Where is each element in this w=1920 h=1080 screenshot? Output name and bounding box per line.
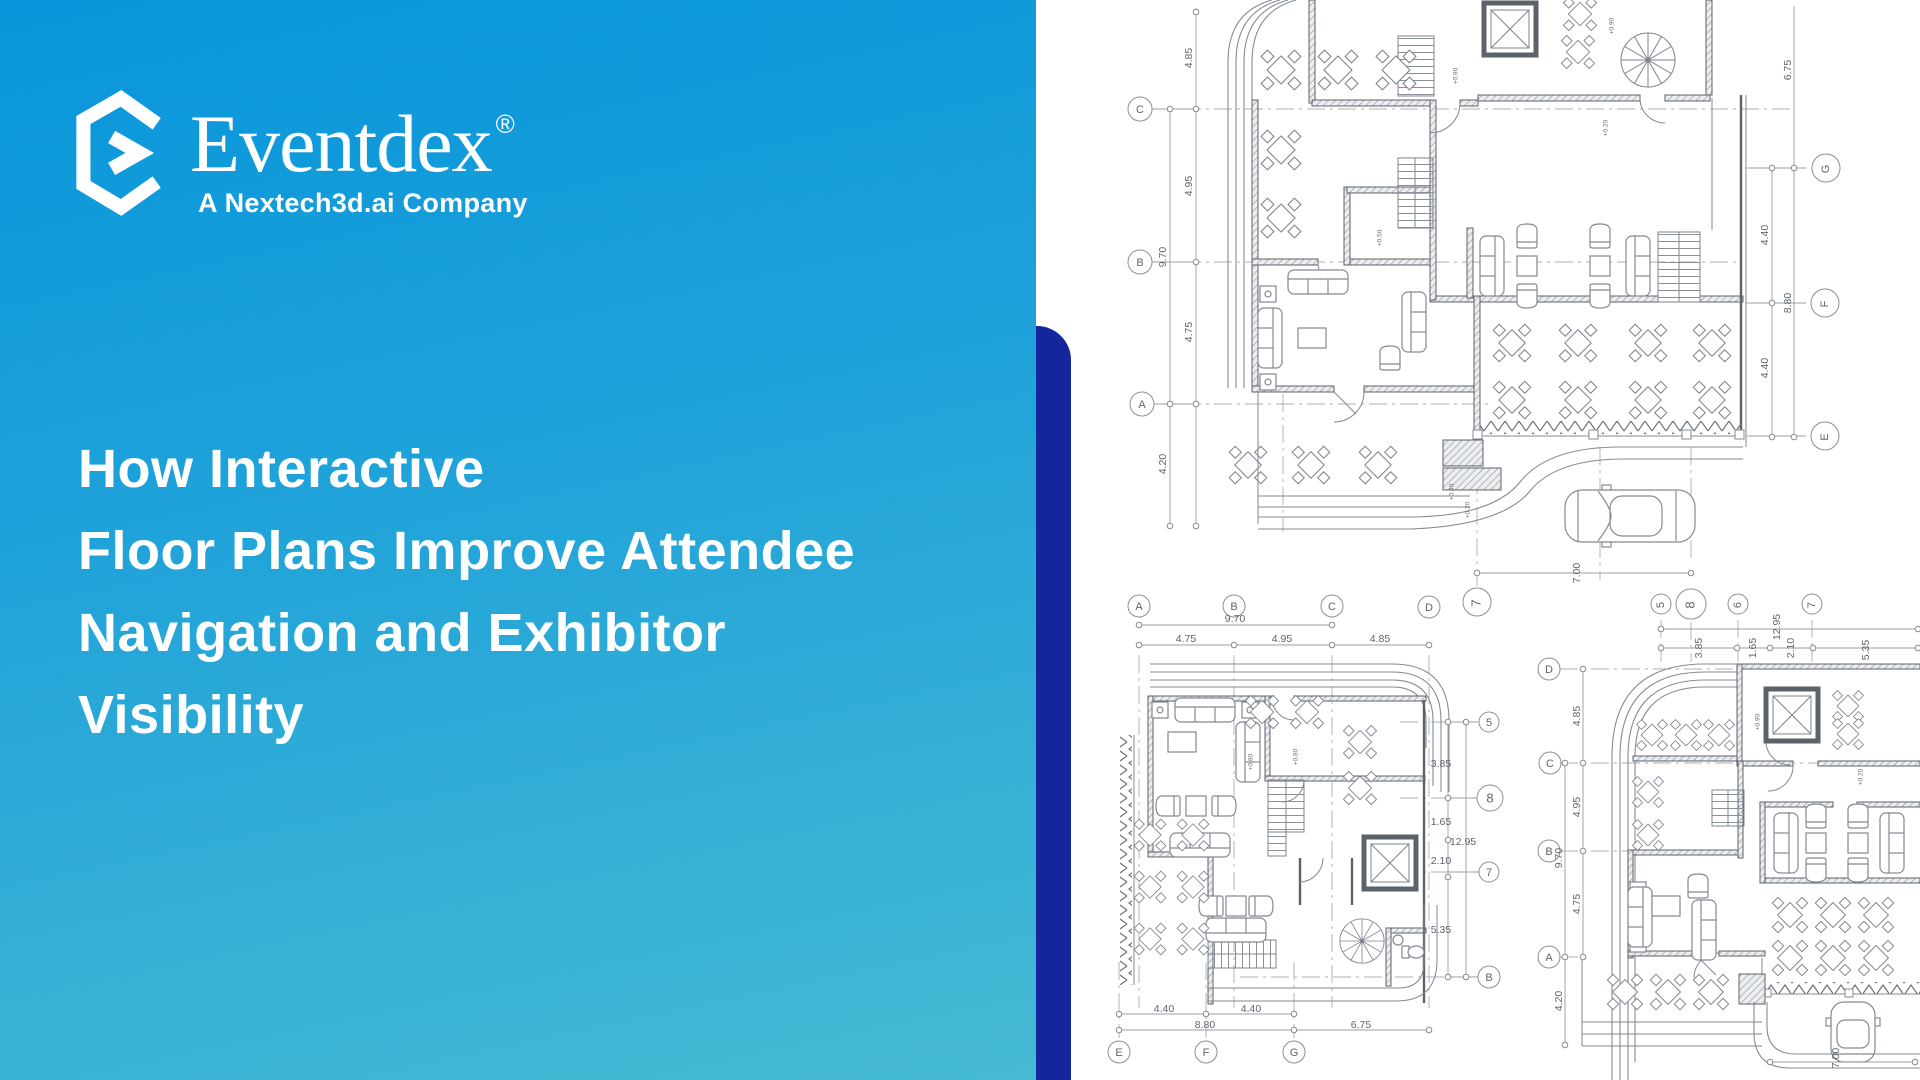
dim-label: 5.35	[1431, 924, 1452, 936]
svg-text:E: E	[1115, 1047, 1122, 1059]
spiral-stair-icon	[1340, 919, 1384, 963]
headline: How Interactive Floor Plans Improve Atte…	[78, 428, 855, 756]
svg-text:C: C	[1136, 104, 1144, 116]
brand-name: Eventdex®	[190, 84, 528, 184]
dim-label: 4.20	[1553, 991, 1565, 1012]
banner-canvas: 4.85 4.95 4.75 9.70 4.20 C B A 6.75 4.40…	[0, 0, 1920, 1080]
walls	[1252, 0, 1746, 447]
eventdex-logo-icon	[74, 87, 168, 217]
svg-text:+0.50: +0.50	[1377, 229, 1384, 246]
dim-label: 12.95	[1771, 614, 1783, 640]
svg-text:B: B	[1545, 846, 1552, 858]
stairs	[1712, 790, 1744, 826]
planter	[1443, 440, 1483, 466]
dim-label: 6.75	[1351, 1019, 1372, 1031]
dim-label: 4.95	[1571, 797, 1583, 818]
svg-text:+0.20: +0.20	[1603, 119, 1610, 136]
registered-mark: ®	[496, 109, 514, 139]
svg-text:8: 8	[1682, 601, 1697, 608]
eventdex-logo: Eventdex® A Nextech3d.ai Company	[74, 84, 528, 219]
dimensions: A B C D 9.70 4.75 4.95 4.85 3.85	[1108, 595, 1503, 1063]
dim-label: 8.80	[1782, 293, 1794, 314]
brand-tagline: A Nextech3d.ai Company	[190, 188, 528, 219]
svg-text:7: 7	[1806, 602, 1818, 608]
svg-text:C: C	[1546, 758, 1554, 770]
dim-label: 8.80	[1195, 1019, 1216, 1031]
dim-label: 9.70	[1553, 848, 1565, 869]
dim-label: 9.70	[1225, 613, 1246, 625]
svg-text:G: G	[1820, 165, 1832, 174]
svg-text:F: F	[1203, 1047, 1210, 1059]
svg-text:+0.20: +0.20	[1465, 501, 1472, 518]
spiral-stair-icon	[1621, 33, 1675, 87]
elevator-icon	[1364, 837, 1416, 889]
dim-label: 2.10	[1785, 638, 1797, 659]
svg-text:+0.90: +0.90	[1755, 713, 1762, 730]
dim-label: 4.95	[1272, 633, 1293, 645]
headline-line-1: How Interactive	[78, 428, 855, 510]
hedge	[1120, 735, 1132, 985]
floor-plan-top: 4.85 4.95 4.75 9.70 4.20 C B A 6.75 4.40…	[1128, 0, 1840, 616]
svg-text:E: E	[1819, 433, 1831, 440]
svg-text:+0.90: +0.90	[1609, 17, 1616, 34]
dim-label: 7.00	[1830, 1048, 1842, 1069]
dim-label: 4.75	[1183, 322, 1195, 343]
dim-label: 4.40	[1759, 358, 1771, 379]
svg-text:D: D	[1425, 602, 1433, 614]
svg-text:7: 7	[1468, 599, 1483, 606]
svg-text:F: F	[1819, 300, 1831, 307]
svg-text:5: 5	[1486, 717, 1492, 729]
floor-plans: 4.85 4.95 4.75 9.70 4.20 C B A 6.75 4.40…	[1036, 0, 1920, 1080]
svg-text:B: B	[1230, 601, 1237, 613]
floor-plan-bottom-left: A B C D 9.70 4.75 4.95 4.85 3.85	[1108, 595, 1503, 1063]
headline-line-2: Floor Plans Improve Attendee	[78, 510, 855, 592]
road-curve	[1150, 664, 1449, 792]
hedge	[1480, 421, 1741, 434]
svg-text:8: 8	[1486, 790, 1493, 805]
dim-label: 1.65	[1431, 816, 1452, 828]
svg-text:+0.80: +0.80	[1248, 753, 1255, 770]
svg-text:5: 5	[1655, 602, 1667, 608]
dim-label: 9.70	[1157, 247, 1169, 268]
svg-text:+0.20: +0.20	[1858, 768, 1865, 785]
dim-label: 4.75	[1176, 633, 1197, 645]
dim-label: 3.85	[1693, 638, 1705, 659]
dim-label: 4.85	[1183, 48, 1195, 69]
car-icon	[1565, 485, 1695, 547]
svg-text:B: B	[1485, 972, 1492, 984]
svg-text:6: 6	[1732, 602, 1744, 608]
dim-label: 4.40	[1241, 1003, 1262, 1015]
dim-label: 7.00	[1571, 563, 1583, 584]
svg-text:B: B	[1136, 257, 1143, 269]
dim-label: 6.75	[1782, 60, 1794, 81]
dim-label: 1.65	[1747, 638, 1759, 659]
dim-label: 4.95	[1183, 176, 1195, 197]
dim-label: 12.95	[1450, 836, 1476, 848]
dim-label: 2.10	[1431, 855, 1452, 867]
svg-text:+0.80: +0.80	[1293, 748, 1300, 765]
elevator-icon	[1766, 689, 1818, 741]
dim-label: 4.85	[1571, 706, 1583, 727]
svg-text:G: G	[1290, 1047, 1299, 1059]
svg-text:+0.40: +0.40	[1449, 483, 1456, 500]
svg-text:7: 7	[1486, 867, 1492, 879]
svg-text:A: A	[1135, 601, 1143, 613]
svg-text:A: A	[1138, 399, 1146, 411]
accent-bar	[1036, 326, 1071, 1080]
furniture	[1258, 224, 1650, 390]
dim-label: 5.35	[1860, 640, 1872, 661]
svg-text:C: C	[1328, 601, 1336, 613]
hedge	[1768, 982, 1920, 994]
svg-text:+0.90: +0.90	[1453, 67, 1460, 84]
svg-text:D: D	[1545, 664, 1553, 676]
svg-text:A: A	[1545, 952, 1553, 964]
dim-label: 4.75	[1571, 894, 1583, 915]
dim-label: 4.20	[1157, 454, 1169, 475]
planter	[1739, 974, 1765, 1004]
headline-line-4: Visibility	[78, 674, 855, 756]
headline-line-3: Navigation and Exhibitor	[78, 592, 855, 674]
floor-plan-bottom-right: 5 8 6 7 12.95 3.85 1.65 2.10 5.35 D	[1538, 589, 1920, 1080]
dim-label: 4.85	[1370, 633, 1391, 645]
dim-label: 4.40	[1759, 225, 1771, 246]
dim-label: 3.85	[1431, 758, 1452, 770]
dimensions: 5 8 6 7 12.95 3.85 1.65 2.10 5.35 D	[1538, 589, 1920, 1068]
dim-label: 4.40	[1154, 1003, 1175, 1015]
elevator-icon	[1484, 3, 1536, 55]
